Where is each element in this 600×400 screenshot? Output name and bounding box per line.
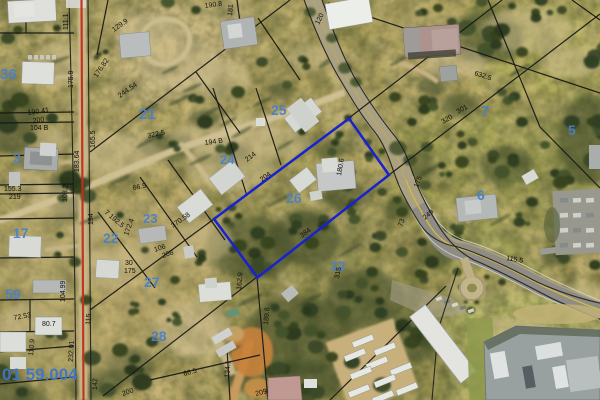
svg-text:3: 3 — [13, 150, 21, 166]
svg-text:175.9: 175.9 — [68, 70, 75, 88]
svg-text:59: 59 — [5, 286, 21, 302]
svg-text:111.1: 111.1 — [63, 13, 70, 30]
svg-text:36: 36 — [0, 66, 17, 83]
svg-text:23: 23 — [143, 211, 157, 226]
svg-text:232.01: 232.01 — [68, 340, 76, 362]
svg-text:28: 28 — [151, 328, 167, 344]
svg-text:194: 194 — [88, 213, 95, 225]
svg-text:27: 27 — [144, 274, 160, 290]
svg-text:142: 142 — [92, 378, 99, 390]
svg-text:104.99: 104.99 — [60, 280, 67, 302]
svg-text:24: 24 — [220, 152, 235, 167]
svg-text:183.64: 183.64 — [74, 150, 81, 172]
svg-text:110.9: 110.9 — [28, 339, 36, 357]
svg-text:80.7: 80.7 — [42, 321, 56, 328]
svg-text:108.2: 108.2 — [62, 184, 70, 202]
svg-text:175: 175 — [124, 268, 136, 275]
svg-text:21: 21 — [139, 106, 156, 123]
svg-text:115: 115 — [85, 313, 93, 325]
svg-text:25: 25 — [271, 102, 287, 118]
svg-text:17: 17 — [13, 225, 29, 241]
svg-text:26: 26 — [286, 190, 302, 206]
svg-text:6: 6 — [477, 187, 485, 203]
svg-text:7: 7 — [481, 103, 489, 120]
svg-text:104 B: 104 B — [30, 125, 49, 132]
svg-text:155.3: 155.3 — [4, 186, 22, 193]
svg-text:5: 5 — [568, 122, 576, 138]
svg-text:165.5: 165.5 — [90, 130, 97, 148]
svg-text:30: 30 — [125, 260, 133, 267]
svg-text:01 59.004: 01 59.004 — [2, 365, 78, 384]
svg-text:22: 22 — [103, 230, 119, 246]
svg-text:219: 219 — [9, 194, 21, 201]
svg-text:181: 181 — [227, 4, 235, 16]
